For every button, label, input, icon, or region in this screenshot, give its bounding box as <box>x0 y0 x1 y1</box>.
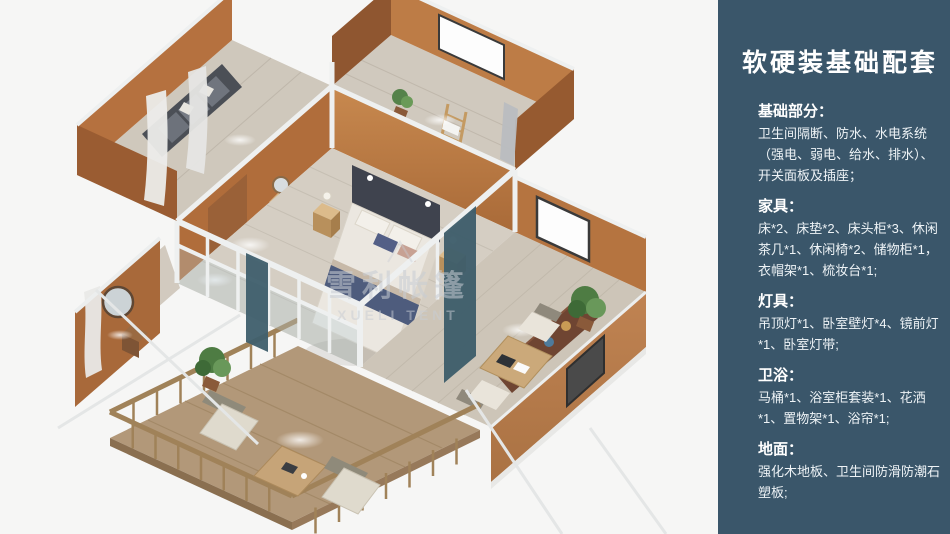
spec-sidebar: 软硬装基础配套 基础部分： 卫生间隔断、防水、水电系统（强电、弱电、给水、排水）… <box>718 0 950 534</box>
section-body: 床*2、床垫*2、床头柜*3、休闲茶几*1、休闲椅*2、储物柜*1，衣帽架*1、… <box>758 218 940 281</box>
sidebar-title: 软硬装基础配套 <box>742 48 942 78</box>
section-lighting: 灯具： 吊顶灯*1、卧室壁灯*4、镜前灯*1、卧室灯带; <box>758 293 940 355</box>
section-basics: 基础部分： 卫生间隔断、防水、水电系统（强电、弱电、给水、排水）、开关面板及插座… <box>758 103 940 186</box>
watermark-cn: 雪利帐篷 <box>326 270 470 303</box>
floor-plan-svg: 雪利帐篷 XUELI TENT <box>0 0 718 534</box>
section-furniture: 家具： 床*2、床垫*2、床头柜*3、休闲茶几*1、休闲椅*2、储物柜*1，衣帽… <box>758 198 940 281</box>
sheer-curtain <box>144 90 168 206</box>
section-heading: 地面： <box>758 441 940 458</box>
section-flooring: 地面： 强化木地板、卫生间防滑防潮石塑板; <box>758 441 940 503</box>
wall-lamp <box>367 175 373 181</box>
section-heading: 家具： <box>758 198 940 215</box>
slide: 雪利帐篷 XUELI TENT 软硬装基础配套 基础部分： 卫生间隔断、防水、水… <box>0 0 950 534</box>
section-body: 马桶*1、浴室柜套装*1、花洒*1、置物架*1、浴帘*1; <box>758 387 940 429</box>
section-body: 强化木地板、卫生间防滑防潮石塑板; <box>758 461 940 503</box>
wing-dressing <box>75 238 180 407</box>
table-lamp <box>323 192 331 200</box>
section-heading: 基础部分： <box>758 103 940 120</box>
section-body: 卫生间隔断、防水、水电系统（强电、弱电、给水、排水）、开关面板及插座； <box>758 123 940 186</box>
teal-curtain <box>246 253 268 352</box>
section-body: 吊顶灯*1、卧室壁灯*4、镜前灯*1、卧室灯带; <box>758 313 940 355</box>
section-bathroom: 卫浴： 马桶*1、浴室柜套装*1、花洒*1、置物架*1、浴帘*1; <box>758 367 940 429</box>
floor-plan-render: 雪利帐篷 XUELI TENT <box>0 0 718 534</box>
section-heading: 卫浴： <box>758 367 940 384</box>
spec-sections: 基础部分： 卫生间隔断、防水、水电系统（强电、弱电、给水、排水）、开关面板及插座… <box>718 103 950 503</box>
section-heading: 灯具： <box>758 293 940 310</box>
watermark-en: XUELI TENT <box>337 307 459 323</box>
wall-lamp <box>425 201 431 207</box>
